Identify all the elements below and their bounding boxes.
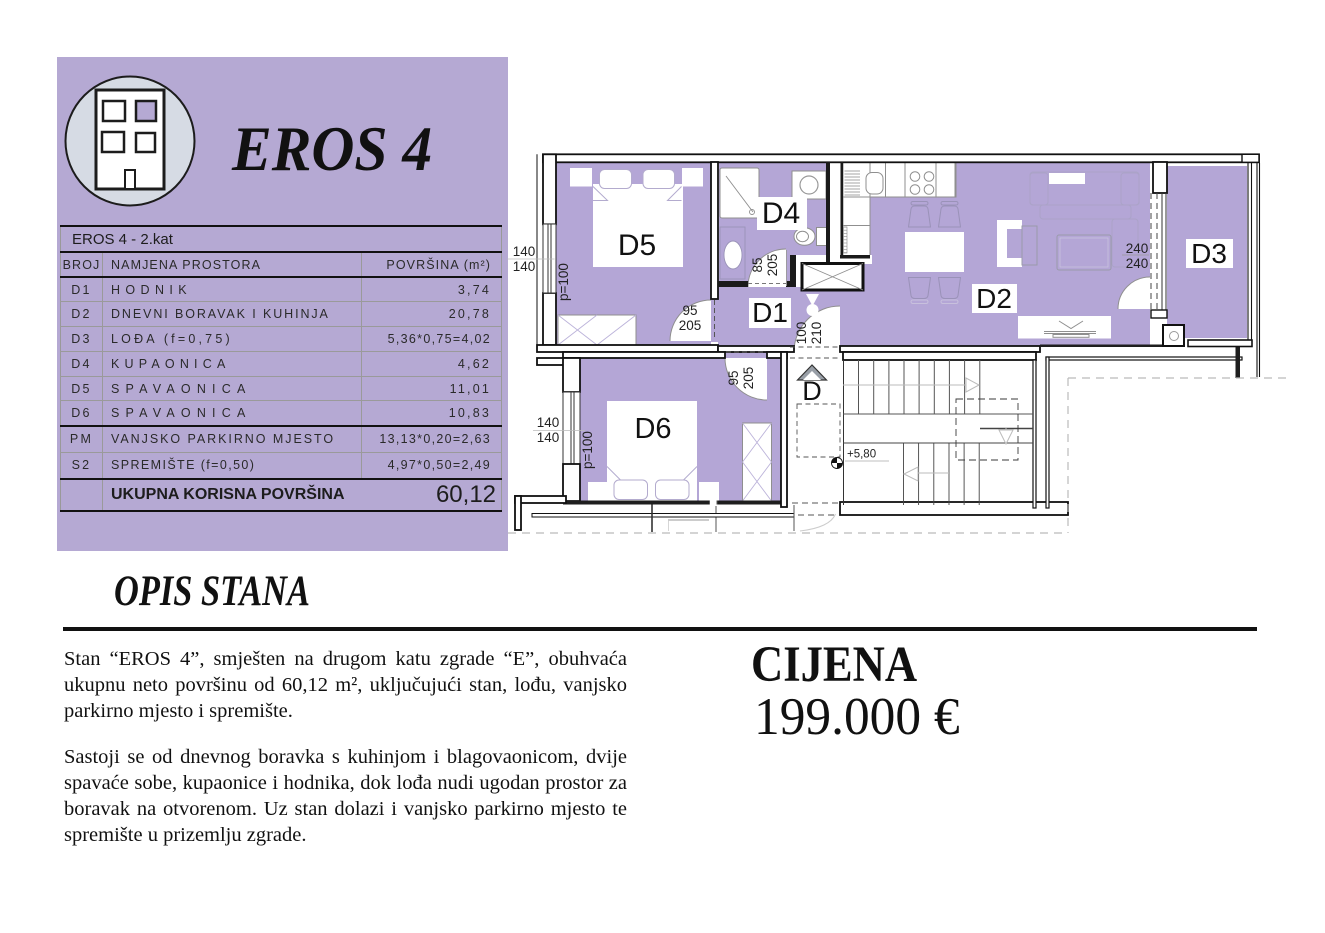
svg-text:D4: D4 bbox=[762, 197, 800, 230]
svg-text:95: 95 bbox=[726, 370, 741, 385]
svg-text:D1: D1 bbox=[752, 297, 788, 328]
svg-text:D: D bbox=[802, 376, 822, 406]
svg-text:D2: D2 bbox=[976, 283, 1012, 314]
svg-text:205: 205 bbox=[741, 367, 756, 390]
svg-text:210: 210 bbox=[809, 322, 824, 345]
svg-text:140: 140 bbox=[513, 244, 536, 259]
svg-text:140: 140 bbox=[537, 415, 560, 430]
svg-text:140: 140 bbox=[537, 430, 560, 445]
svg-text:240: 240 bbox=[1126, 256, 1149, 271]
svg-text:p=100: p=100 bbox=[556, 263, 571, 301]
svg-text:D3: D3 bbox=[1191, 238, 1227, 269]
svg-text:D6: D6 bbox=[634, 413, 671, 445]
svg-text:D5: D5 bbox=[618, 229, 656, 262]
svg-text:140: 140 bbox=[513, 259, 536, 274]
svg-text:85: 85 bbox=[750, 257, 765, 272]
svg-text:95: 95 bbox=[682, 303, 697, 318]
svg-text:205: 205 bbox=[765, 254, 780, 277]
svg-text:240: 240 bbox=[1126, 241, 1149, 256]
svg-text:100: 100 bbox=[794, 322, 809, 345]
svg-text:205: 205 bbox=[679, 318, 702, 333]
svg-text:+5,80: +5,80 bbox=[847, 449, 876, 461]
svg-text:p=100: p=100 bbox=[580, 431, 595, 469]
